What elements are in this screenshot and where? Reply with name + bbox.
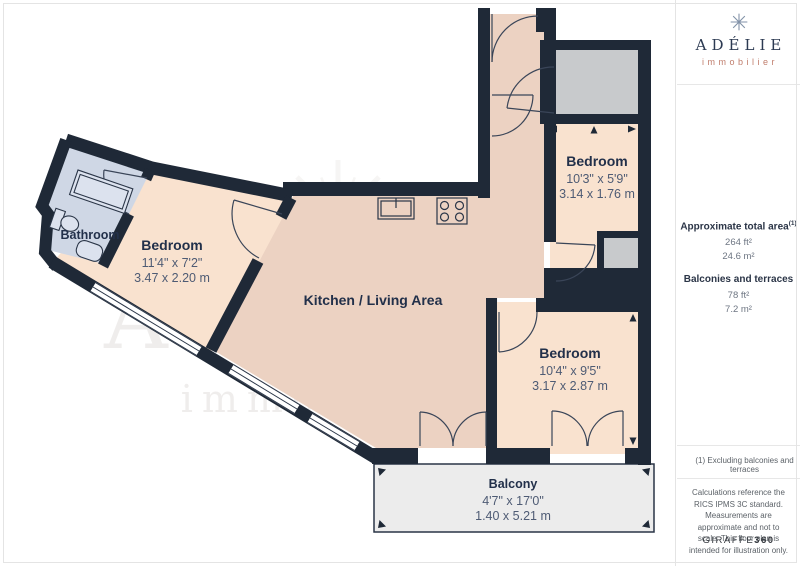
- balcony-area-label: Balconies and terraces: [676, 274, 800, 285]
- room-dim-ft: 11'4" x 7'2": [142, 256, 203, 270]
- room-label-bathroom: Bathroom: [60, 228, 119, 242]
- room-name: Bedroom: [539, 345, 600, 361]
- agency-tagline: immobilier: [676, 57, 800, 67]
- giraffe360-brand: GIRAFFE360: [676, 535, 800, 546]
- info-sidebar: ADÉLIE immobilier Approximate total area…: [675, 0, 800, 566]
- footnote-marker: (1): [789, 220, 797, 227]
- room-label-bedroom-3: Bedroom 10'4" x 9'5" 3.17 x 2.87 m: [532, 345, 608, 393]
- divider: [677, 84, 800, 85]
- total-area-m: 24.6 m²: [676, 251, 800, 262]
- room-label-bedroom-2: Bedroom 10'3" x 5'9" 3.14 x 1.76 m: [559, 153, 635, 201]
- room-dim-m: 3.14 x 1.76 m: [559, 187, 635, 201]
- room-name: Bedroom: [566, 153, 627, 169]
- room-label-bedroom-1: Bedroom 11'4" x 7'2" 3.47 x 2.20 m: [134, 237, 210, 285]
- room-name: Bedroom: [141, 237, 202, 253]
- footnote-text: (1) Excluding balconies and terraces: [676, 456, 800, 474]
- balcony-area-ft: 78 ft²: [676, 290, 800, 301]
- agency-name: ADÉLIE: [676, 36, 800, 54]
- room-name: Kitchen / Living Area: [304, 292, 443, 308]
- brand-suffix: 360: [754, 535, 774, 546]
- room-dim-ft: 10'4" x 9'5": [539, 364, 601, 378]
- divider: [677, 445, 800, 446]
- closet-2-floor: [604, 238, 638, 272]
- total-area-ft: 264 ft²: [676, 237, 800, 248]
- room-name: Bathroom: [60, 228, 119, 242]
- floorplan-page: ADÉLIE immobilier: [0, 0, 800, 566]
- balcony-area-m: 7.2 m²: [676, 304, 800, 315]
- room-name: Balcony: [489, 477, 538, 491]
- room-dim-ft: 4'7" x 17'0": [482, 494, 544, 508]
- room-dim-ft: 10'3" x 5'9": [566, 172, 628, 186]
- floorplan-drawing: ADÉLIE immobilier: [0, 0, 675, 566]
- snowflake-icon: [729, 12, 749, 32]
- total-area-label: Approximate total area(1): [676, 220, 800, 232]
- brand-name: GIRAFFE: [702, 535, 754, 546]
- disclaimer-text: Calculations reference the RICS IPMS 3C …: [676, 487, 800, 557]
- bedroom-3-floor: [490, 302, 642, 454]
- agency-logo: ADÉLIE immobilier: [676, 12, 800, 67]
- room-dim-m: 1.40 x 5.21 m: [475, 509, 551, 523]
- room-dim-m: 3.47 x 2.20 m: [134, 271, 210, 285]
- area-stats: Approximate total area(1) 264 ft² 24.6 m…: [676, 220, 800, 318]
- room-dim-m: 3.17 x 2.87 m: [532, 379, 608, 393]
- room-label-kitchen: Kitchen / Living Area: [304, 292, 443, 308]
- closet-top-floor: [556, 50, 638, 114]
- divider: [677, 478, 800, 479]
